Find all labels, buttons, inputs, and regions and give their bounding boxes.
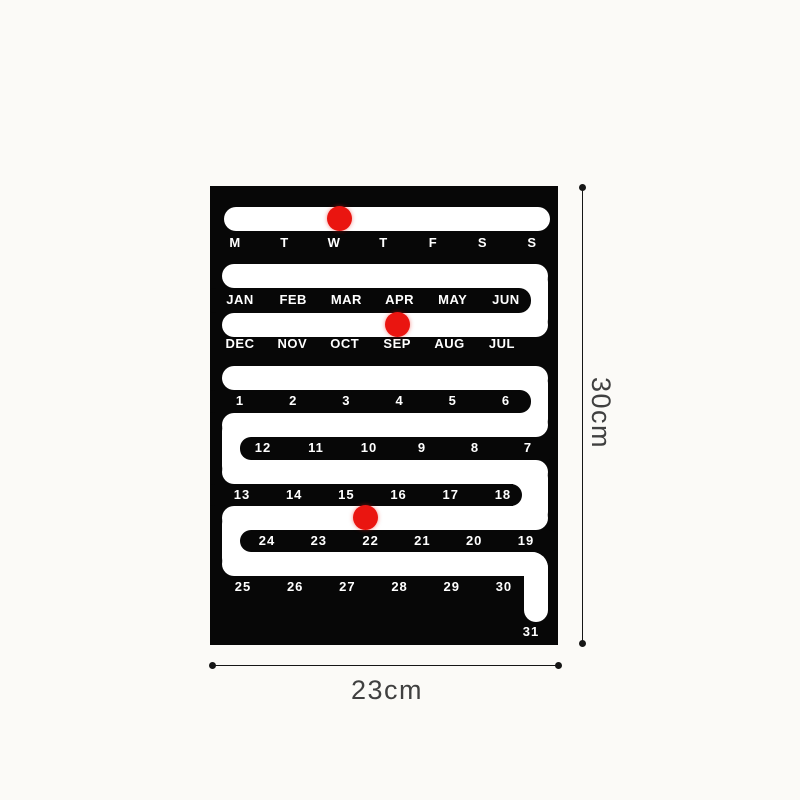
dates-row-1: 1 2 3 4 5 6	[225, 393, 521, 409]
date-label: 15	[331, 487, 361, 503]
date-label: 19	[511, 533, 541, 549]
dates-row-2: 12 11 10 9 8 7	[248, 440, 543, 456]
date-label: 14	[279, 487, 309, 503]
date-label: 27	[332, 579, 362, 595]
date-marker-dot	[353, 505, 378, 530]
weekday-label: W	[324, 235, 344, 251]
month-label: JAN	[222, 292, 258, 308]
dates-row-3: 13 14 15 16 17 18	[227, 487, 518, 503]
date-label: 26	[280, 579, 310, 595]
date-label: 28	[385, 579, 415, 595]
month-label: JUN	[488, 292, 524, 308]
month-label: MAR	[328, 292, 364, 308]
date-label: 13	[227, 487, 257, 503]
month-label: DEC	[222, 336, 258, 352]
month-label: OCT	[327, 336, 363, 352]
height-dimension-line	[582, 187, 583, 643]
date-label: 11	[301, 440, 331, 456]
track-dates-bar-1	[222, 366, 548, 390]
dimension-endpoint-dot	[209, 662, 216, 669]
track-weekday-bar	[224, 207, 550, 231]
months-top-row: JAN FEB MAR APR MAY JUN	[222, 292, 524, 308]
weekday-label: T	[275, 235, 295, 251]
track-dates-bar-2	[222, 413, 548, 437]
track-dates-bar-3	[222, 460, 548, 484]
weekday-label: T	[374, 235, 394, 251]
calendar-poster: M T W T F S S JAN FEB MAR APR MAY JUN DE…	[210, 186, 558, 645]
track-months-top-bar	[222, 264, 548, 288]
dimension-endpoint-dot	[579, 184, 586, 191]
date-label-31: 31	[516, 624, 546, 640]
date-label: 10	[354, 440, 384, 456]
month-label: FEB	[275, 292, 311, 308]
date-label: 20	[459, 533, 489, 549]
date-label: 3	[331, 393, 361, 409]
date-label: 1	[225, 393, 255, 409]
weekday-label: M	[225, 235, 245, 251]
date-label: 9	[407, 440, 437, 456]
weekday-marker-dot	[327, 206, 352, 231]
date-label: 21	[407, 533, 437, 549]
date-label: 17	[436, 487, 466, 503]
date-label: 2	[278, 393, 308, 409]
date-label: 12	[248, 440, 278, 456]
date-label: 29	[437, 579, 467, 595]
date-label: 24	[252, 533, 282, 549]
month-label: AUG	[432, 336, 468, 352]
track-dates-bar-4	[222, 506, 548, 530]
date-label: 6	[491, 393, 521, 409]
width-dimension-label: 23cm	[327, 676, 447, 704]
date-label: 18	[488, 487, 518, 503]
date-label: 8	[460, 440, 490, 456]
month-marker-dot	[385, 312, 410, 337]
date-label: 23	[304, 533, 334, 549]
width-dimension-line	[212, 665, 558, 666]
dates-row-4: 24 23 22 21 20 19	[252, 533, 541, 549]
date-label: 25	[228, 579, 258, 595]
date-label: 4	[385, 393, 415, 409]
weekday-row: M T W T F S S	[225, 235, 542, 251]
date-label: 5	[438, 393, 468, 409]
month-label: NOV	[274, 336, 310, 352]
months-bottom-row: DEC NOV OCT SEP AUG JUL	[222, 336, 520, 352]
month-label: MAY	[435, 292, 471, 308]
dimension-endpoint-dot	[579, 640, 586, 647]
track-dates-bar-5	[222, 552, 548, 576]
weekday-label: S	[522, 235, 542, 251]
month-label: JUL	[484, 336, 520, 352]
dimension-endpoint-dot	[555, 662, 562, 669]
date-label: 16	[384, 487, 414, 503]
weekday-label: F	[423, 235, 443, 251]
dates-row-5: 25 26 27 28 29 30	[228, 579, 519, 595]
date-label: 7	[513, 440, 543, 456]
track-descender-31	[524, 552, 548, 622]
month-label: SEP	[379, 336, 415, 352]
height-dimension-label: 30cm	[587, 353, 615, 473]
date-label: 22	[356, 533, 386, 549]
date-label: 30	[489, 579, 519, 595]
month-label: APR	[382, 292, 418, 308]
weekday-label: S	[473, 235, 493, 251]
